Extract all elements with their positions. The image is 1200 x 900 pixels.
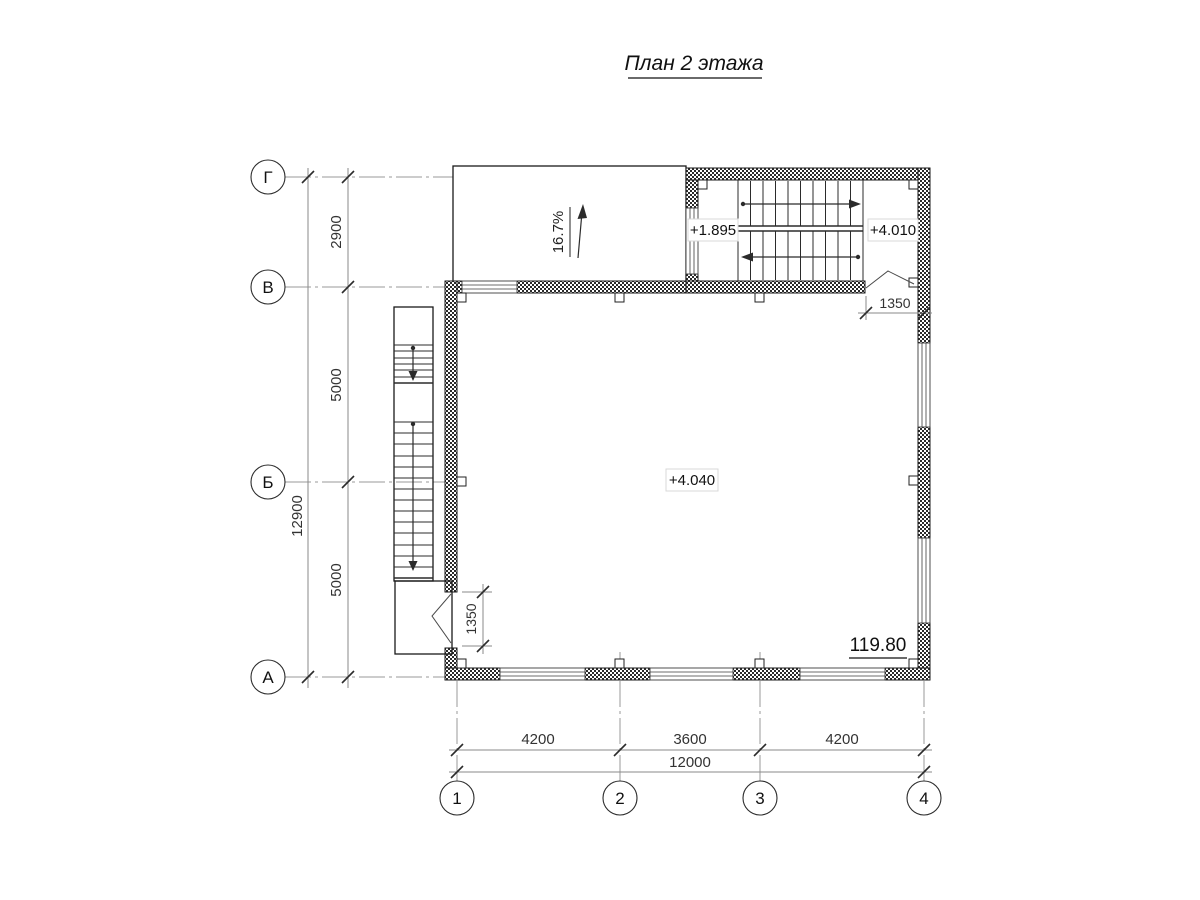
axis-label-3: 3 [755, 789, 764, 808]
dim-bottom-seg-2: 3600 [673, 731, 706, 748]
window [918, 538, 930, 623]
axis-label-a: А [262, 668, 274, 687]
dim-left-overall: 12900 [289, 495, 306, 537]
room-area-value: 119.80 [850, 635, 907, 656]
ramp: 16.7% [453, 166, 686, 283]
dim-left-seg-1: 2900 [328, 215, 345, 248]
window [800, 668, 885, 680]
ramp-slope-label: 16.7% [550, 211, 567, 254]
dim-right-door: 1350 [879, 295, 910, 311]
dim-bottom-seg-1: 4200 [521, 731, 554, 748]
axis-label-4: 4 [919, 789, 928, 808]
floor-plan-page: План 2 этажа 12900 2900 5000 5000 [0, 0, 1200, 900]
canvas-background [0, 0, 1200, 900]
axis-label-v: В [262, 278, 273, 297]
dim-left-door: 1350 [463, 603, 479, 634]
title-text: План 2 этажа [624, 52, 763, 75]
window [500, 668, 585, 680]
dim-left-seg-2: 5000 [328, 368, 345, 401]
drawing-title: План 2 этажа [624, 52, 763, 78]
axis-label-b: Б [262, 473, 273, 492]
window [462, 281, 517, 293]
window [918, 343, 930, 427]
dim-bottom-overall: 12000 [669, 754, 711, 771]
axis-label-2: 2 [615, 789, 624, 808]
room-area-label: 119.80 [849, 635, 907, 658]
level-stair-top: +4.010 [870, 222, 916, 239]
dim-bottom-seg-3: 4200 [825, 731, 858, 748]
window [650, 668, 733, 680]
level-floor: +4.040 [669, 472, 715, 489]
floor-plan-drawing: План 2 этажа 12900 2900 5000 5000 [0, 0, 1200, 900]
axis-label-1: 1 [452, 789, 461, 808]
axis-label-g: Г [263, 168, 272, 187]
dim-left-seg-3: 5000 [328, 563, 345, 596]
level-stair-mid: +1.895 [690, 222, 736, 239]
